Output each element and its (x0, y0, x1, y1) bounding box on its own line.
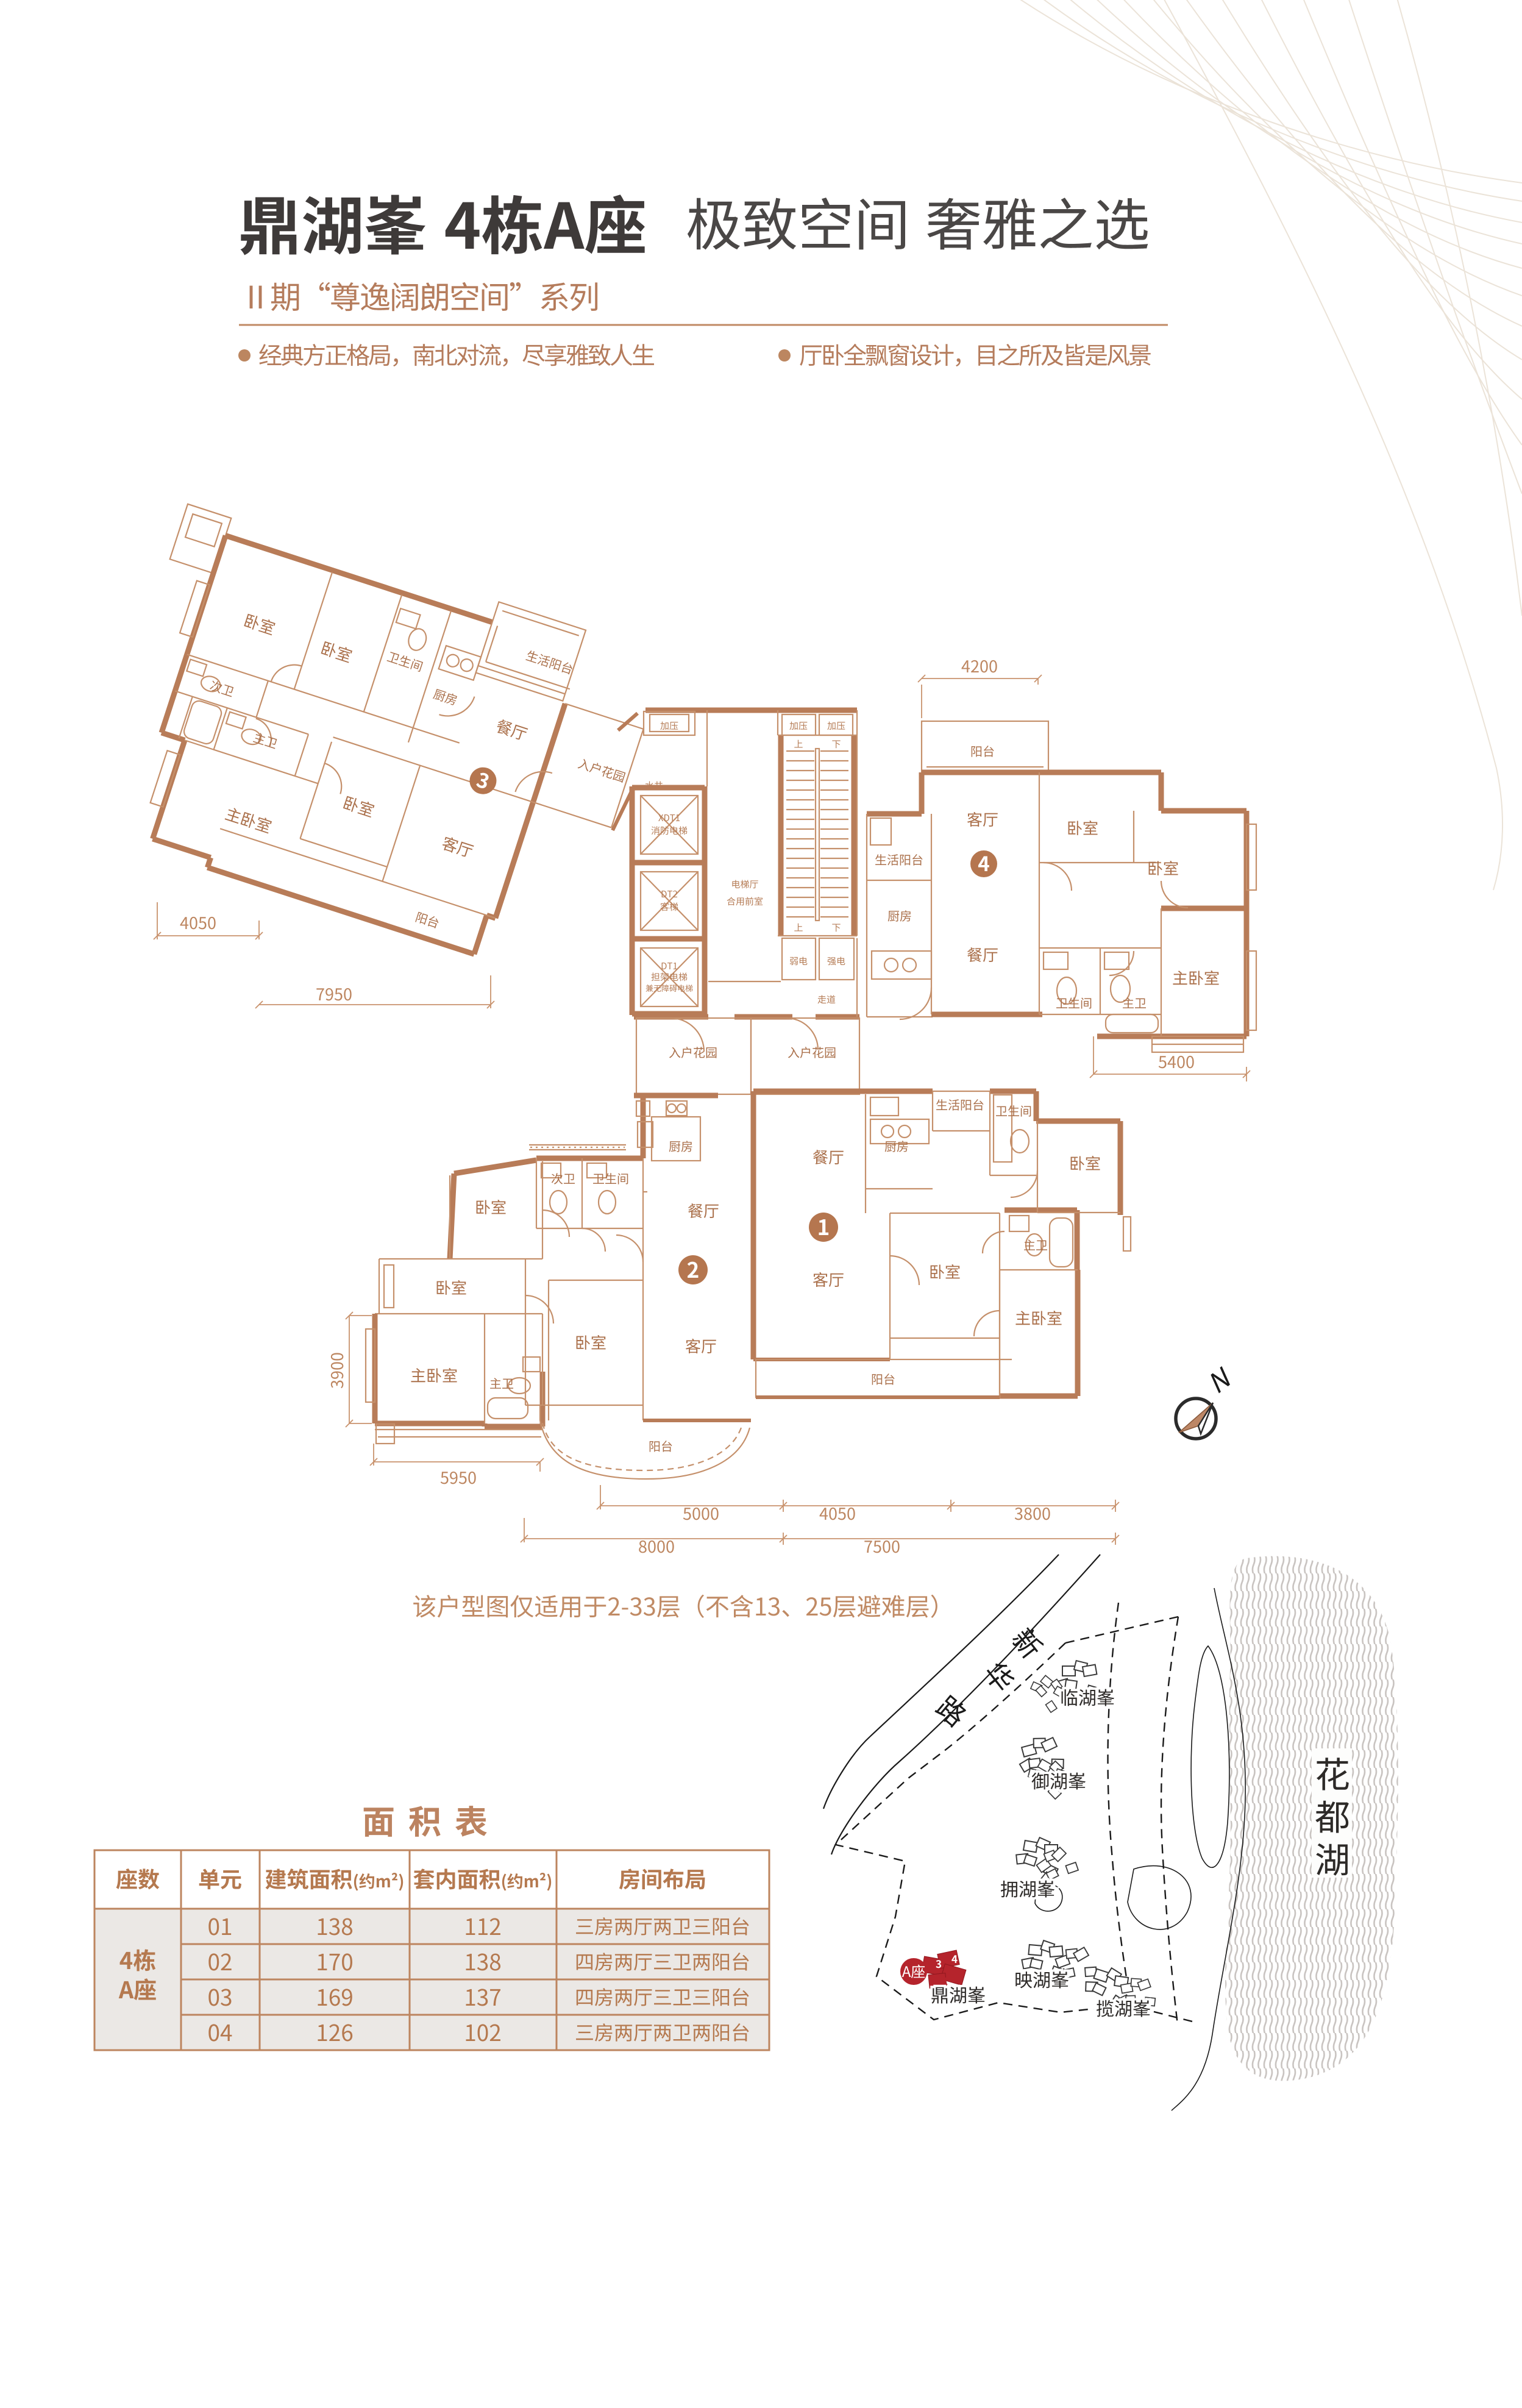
svg-text:兼无障碍电梯: 兼无障碍电梯 (645, 982, 693, 994)
svg-text:102: 102 (464, 2015, 502, 2048)
svg-text:主卫: 主卫 (1023, 1236, 1048, 1253)
svg-text:A座: A座 (118, 1972, 157, 2005)
svg-text:客厅: 客厅 (813, 1268, 844, 1291)
svg-text:单元: 单元 (198, 1862, 242, 1894)
svg-text:主卧室: 主卧室 (1172, 966, 1220, 989)
svg-text:厅卧全飘窗设计，目之所及皆是风景: 厅卧全飘窗设计，目之所及皆是风景 (799, 337, 1151, 371)
svg-text:3800: 3800 (1014, 1501, 1051, 1525)
svg-text:主卫: 主卫 (489, 1374, 514, 1392)
svg-text:御湖峯: 御湖峯 (1031, 1767, 1086, 1794)
svg-text:三房两厅两卫两阳台: 三房两厅两卫两阳台 (575, 2018, 750, 2046)
svg-text:阳台: 阳台 (970, 742, 995, 760)
svg-text:4栋: 4栋 (119, 1942, 156, 1976)
svg-text:入户花园: 入户花园 (669, 1043, 717, 1061)
svg-text:DT2: DT2 (661, 888, 678, 900)
svg-text:厨房: 厨房 (432, 685, 460, 709)
svg-text:5000: 5000 (683, 1501, 719, 1525)
svg-text:建筑面积(约m²): 建筑面积(约m²) (265, 1862, 405, 1894)
svg-text:厨房: 厨房 (669, 1137, 693, 1155)
svg-text:137: 137 (464, 1979, 502, 2012)
svg-text:112: 112 (464, 1909, 502, 1942)
svg-text:面积表: 面积表 (362, 1795, 501, 1843)
svg-text:套内面积(约m²): 套内面积(约m²) (413, 1862, 553, 1894)
svg-text:4050: 4050 (180, 910, 216, 934)
svg-text:卧室: 卧室 (435, 1276, 467, 1298)
svg-text:8000: 8000 (638, 1534, 675, 1558)
svg-text:生活阳台: 生活阳台 (875, 850, 923, 868)
svg-text:138: 138 (464, 1944, 502, 1977)
svg-text:主卫: 主卫 (251, 728, 280, 752)
svg-text:强电: 强电 (827, 955, 845, 967)
svg-text:主卧室: 主卧室 (410, 1364, 458, 1386)
svg-text:卧室: 卧室 (1147, 857, 1179, 879)
svg-text:卫生间: 卫生间 (995, 1102, 1032, 1119)
svg-text:揽湖峯: 揽湖峯 (1096, 1994, 1151, 2021)
svg-text:客厅: 客厅 (439, 831, 477, 862)
svg-text:卧室: 卧室 (340, 791, 377, 822)
svg-text:阳台: 阳台 (871, 1370, 895, 1387)
svg-text:消防电梯: 消防电梯 (651, 824, 688, 837)
svg-text:电梯厅: 电梯厅 (731, 878, 758, 891)
svg-text:合用前室: 合用前室 (727, 895, 763, 908)
svg-text:临湖峯: 临湖峯 (1060, 1683, 1115, 1710)
svg-text:4050: 4050 (819, 1501, 856, 1525)
svg-text:厨房: 厨房 (887, 907, 912, 924)
svg-text:下: 下 (831, 738, 841, 750)
svg-text:担架电梯: 担架电梯 (651, 971, 688, 983)
svg-text:A座: A座 (902, 1960, 926, 1981)
svg-text:阳台: 阳台 (413, 907, 442, 931)
svg-text:入户花园: 入户花园 (576, 753, 628, 785)
svg-text:四房两厅三卫两阳台: 四房两厅三卫两阳台 (575, 1947, 750, 1975)
svg-text:4: 4 (951, 1951, 958, 1966)
svg-text:卫生间: 卫生间 (385, 647, 425, 675)
svg-text:1: 1 (817, 1211, 830, 1242)
svg-text:XDT1: XDT1 (658, 811, 680, 824)
svg-text:加压: 加压 (789, 719, 808, 732)
svg-text:走道: 走道 (817, 993, 836, 1006)
svg-text:卧室: 卧室 (475, 1195, 507, 1218)
svg-text:3: 3 (936, 1956, 942, 1971)
svg-text:卫生间: 卫生间 (1056, 994, 1092, 1011)
svg-text:3900: 3900 (324, 1352, 348, 1389)
svg-text:主卧室: 主卧室 (1015, 1306, 1062, 1329)
svg-text:卧室: 卧室 (1069, 1152, 1101, 1174)
svg-text:厨房: 厨房 (884, 1137, 909, 1155)
svg-text:三房两厅两卫三阳台: 三房两厅两卫三阳台 (575, 1912, 750, 1940)
svg-text:卫生间: 卫生间 (592, 1169, 629, 1187)
svg-text:座数: 座数 (116, 1862, 160, 1894)
svg-text:5400: 5400 (1158, 1049, 1195, 1073)
svg-text:169: 169 (316, 1979, 354, 2012)
svg-text:客厅: 客厅 (967, 808, 998, 830)
svg-text:01: 01 (207, 1909, 232, 1942)
svg-text:卧室: 卧室 (575, 1331, 606, 1353)
svg-text:03: 03 (207, 1979, 232, 2012)
svg-text:卧室: 卧室 (241, 608, 279, 639)
svg-text:上: 上 (794, 921, 803, 934)
svg-text:拥湖峯: 拥湖峯 (1000, 1875, 1055, 1901)
svg-text:上: 上 (794, 738, 803, 750)
svg-text:7500: 7500 (864, 1534, 900, 1558)
svg-text:鼎湖峯 4栋A座: 鼎湖峯 4栋A座 (238, 176, 647, 267)
svg-text:卧室: 卧室 (318, 636, 355, 667)
svg-text:湖: 湖 (1315, 1832, 1350, 1883)
svg-text:下: 下 (831, 921, 841, 934)
svg-text:Ⅱ期“尊逸阔朗空间”系列: Ⅱ期“尊逸阔朗空间”系列 (240, 273, 599, 318)
svg-text:卧室: 卧室 (929, 1260, 961, 1283)
svg-text:生活阳台: 生活阳台 (936, 1095, 984, 1113)
svg-text:经典方正格局，南北对流，尽享雅致人生: 经典方正格局，南北对流，尽享雅致人生 (258, 337, 654, 371)
svg-text:次卫: 次卫 (551, 1169, 575, 1187)
svg-text:餐厅: 餐厅 (688, 1199, 719, 1222)
svg-text:04: 04 (207, 2015, 232, 2048)
svg-text:房间布局: 房间布局 (619, 1862, 706, 1894)
svg-text:N: N (1198, 1357, 1239, 1402)
svg-text:加压: 加压 (827, 719, 845, 732)
svg-text:126: 126 (316, 2015, 354, 2048)
svg-text:次卫: 次卫 (208, 676, 236, 700)
svg-text:弱电: 弱电 (789, 955, 808, 967)
svg-text:2: 2 (687, 1253, 700, 1284)
svg-text:四房两厅三卫三阳台: 四房两厅三卫三阳台 (575, 1982, 750, 2011)
svg-text:4200: 4200 (961, 654, 998, 677)
svg-text:客梯: 客梯 (660, 900, 678, 913)
svg-text:餐厅: 餐厅 (493, 714, 530, 745)
svg-text:生活阳台: 生活阳台 (524, 646, 576, 677)
svg-text:映湖峯: 映湖峯 (1014, 1965, 1069, 1992)
svg-text:卧室: 卧室 (1067, 816, 1098, 839)
svg-text:极致空间 奢雅之选: 极致空间 奢雅之选 (686, 180, 1150, 262)
svg-text:5950: 5950 (440, 1465, 477, 1489)
svg-text:入户花园: 入户花园 (788, 1043, 836, 1061)
svg-text:4: 4 (978, 848, 989, 877)
svg-text:客厅: 客厅 (685, 1334, 717, 1357)
svg-text:主卫: 主卫 (1122, 994, 1147, 1011)
svg-text:餐厅: 餐厅 (813, 1145, 844, 1168)
svg-text:138: 138 (316, 1909, 354, 1942)
svg-text:7950: 7950 (316, 981, 352, 1005)
svg-text:加压: 加压 (660, 719, 678, 732)
svg-text:该户型图仅适用于2-33层（不含13、25层避难层）: 该户型图仅适用于2-33层（不含13、25层避难层） (412, 1587, 954, 1623)
svg-text:阳台: 阳台 (649, 1437, 673, 1455)
svg-text:鼎湖峯: 鼎湖峯 (931, 1981, 986, 2007)
svg-text:餐厅: 餐厅 (967, 943, 998, 966)
svg-text:02: 02 (207, 1944, 232, 1977)
svg-text:170: 170 (316, 1944, 354, 1977)
